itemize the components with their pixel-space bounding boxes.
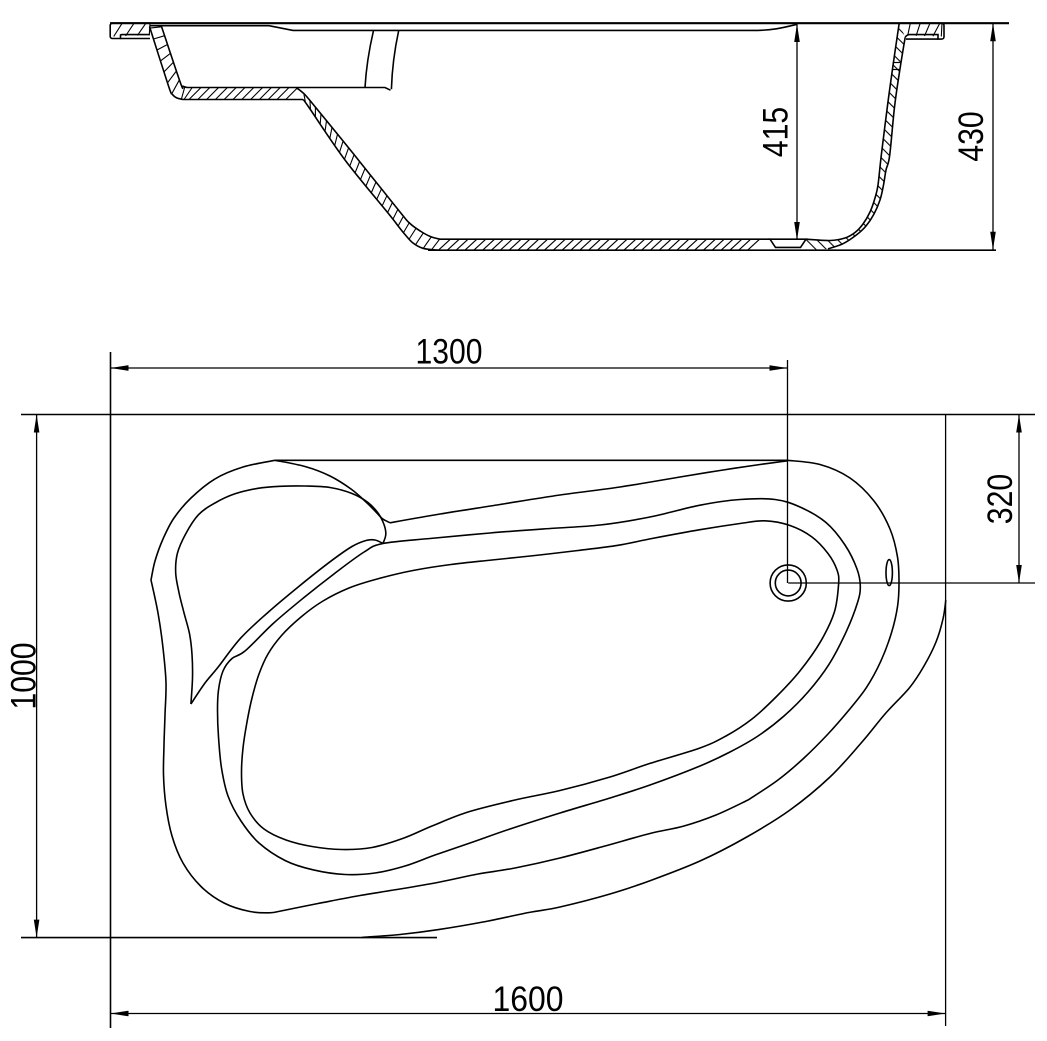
svg-text:320: 320 [981,474,1020,525]
svg-text:1000: 1000 [5,643,44,710]
svg-text:430: 430 [952,111,991,162]
svg-text:1600: 1600 [493,980,564,1019]
svg-text:1300: 1300 [416,333,483,372]
svg-text:415: 415 [757,107,796,158]
